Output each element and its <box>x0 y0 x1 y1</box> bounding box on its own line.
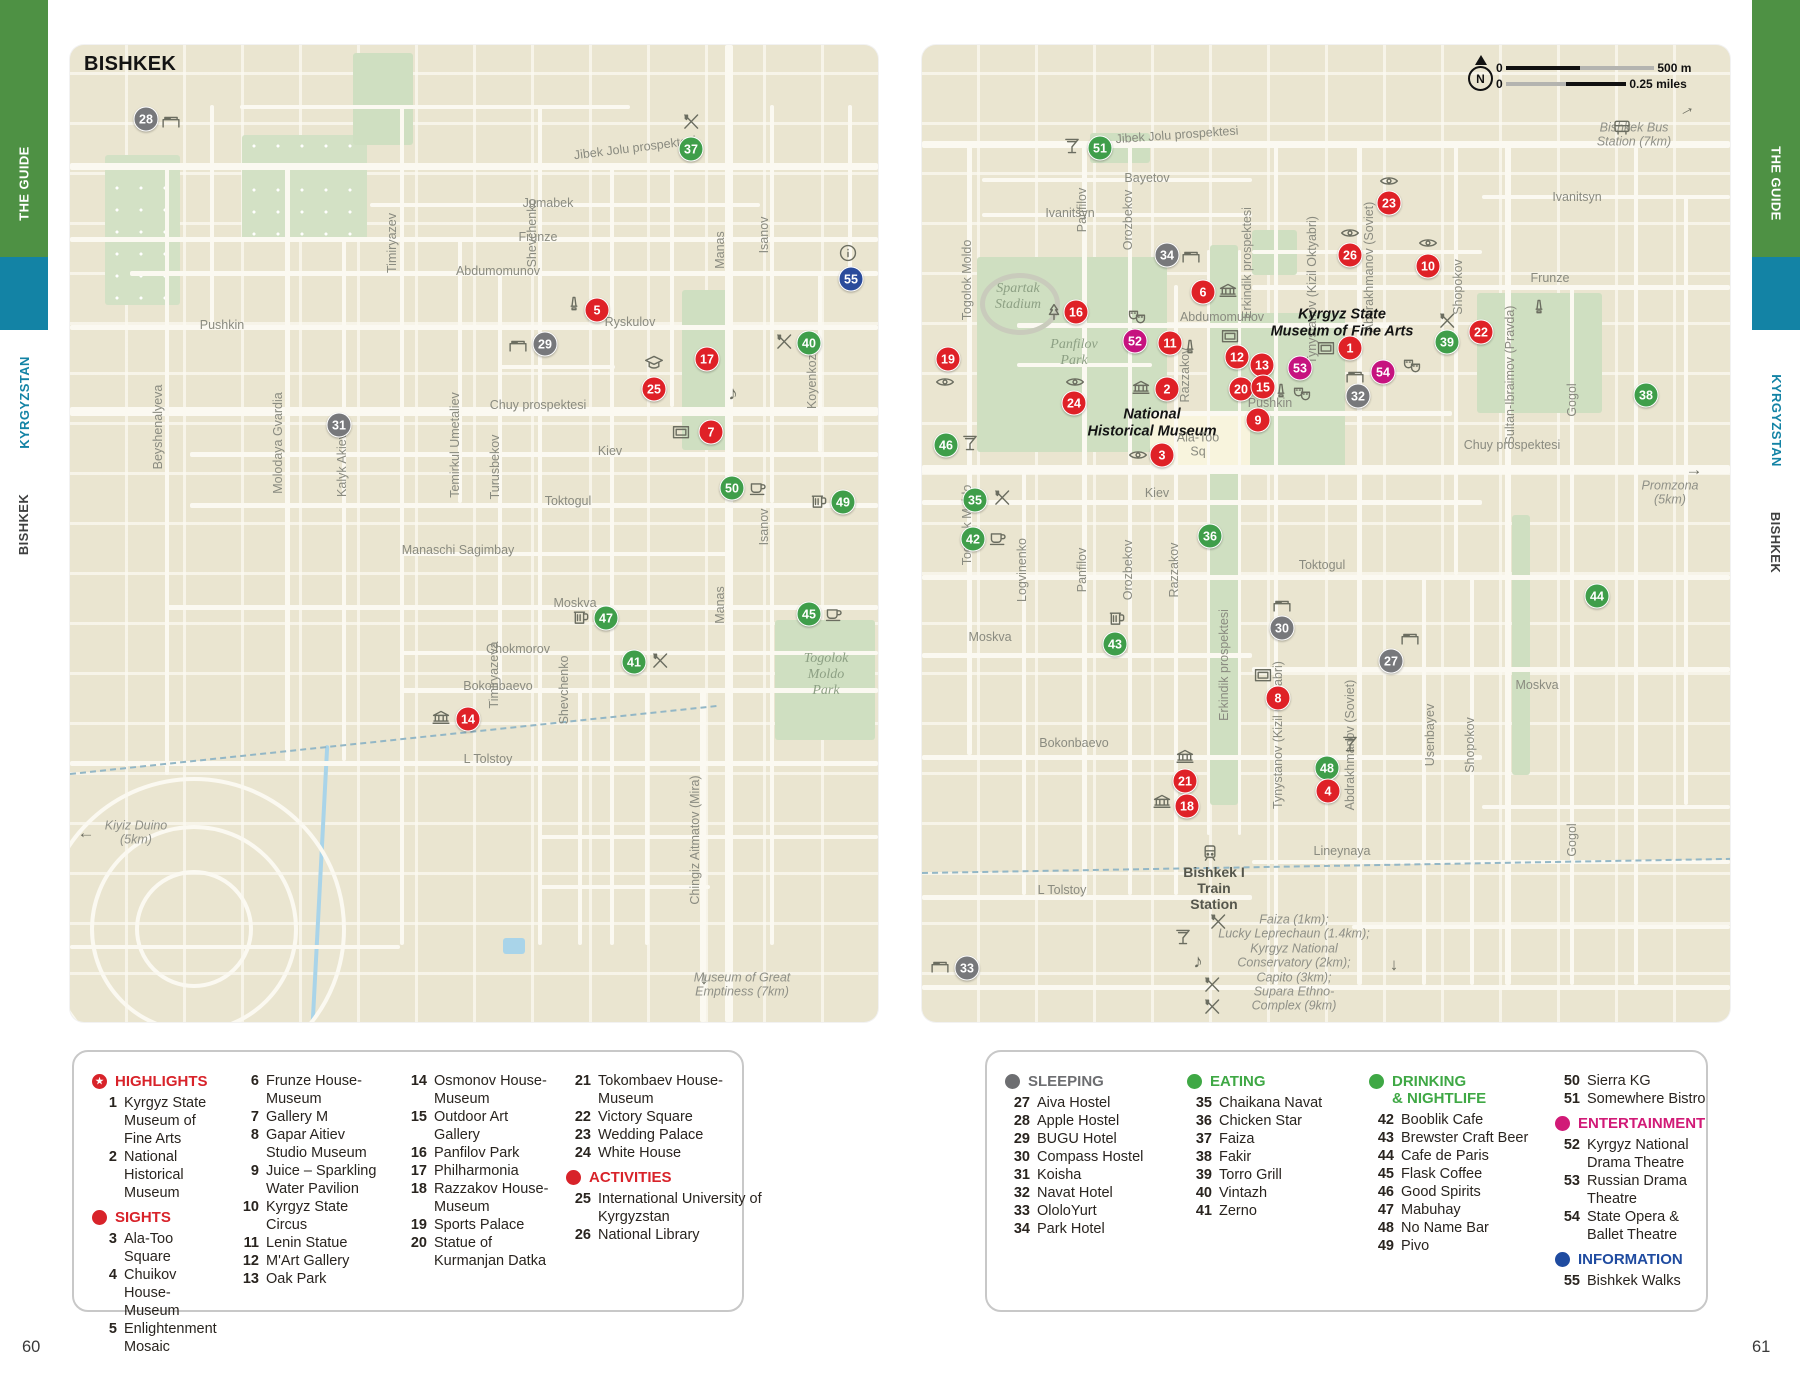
street <box>1352 925 1730 929</box>
map-label: Spartak Stadium <box>995 281 1041 313</box>
map-marker-35[interactable]: 35 <box>963 488 988 513</box>
legend-item: 38Fakir <box>1187 1148 1355 1166</box>
map-label: Bayetov <box>1124 171 1169 185</box>
legend-item-label: OloloYurt <box>1037 1202 1173 1220</box>
street <box>922 465 1730 474</box>
map-label: Shevchenko <box>557 656 571 725</box>
street <box>240 105 630 109</box>
street <box>922 575 1730 580</box>
legend-item: 21Tokombaev House-Museum <box>566 1072 762 1108</box>
map-label: Bishkek I Train Station <box>1183 864 1244 912</box>
legend-item-number: 47 <box>1369 1201 1401 1219</box>
legend-item: 35Chaikana Navat <box>1187 1094 1355 1112</box>
legend-item: 25International University of Kyrgyzstan <box>566 1190 762 1226</box>
map-marker-55[interactable]: 55 <box>839 267 864 292</box>
eye-icon <box>1065 372 1086 393</box>
legend-item: 9Juice – Sparkling Water Pavilion <box>234 1162 388 1198</box>
legend-item-label: Sierra KG <box>1587 1072 1715 1090</box>
scale-metric: 500 m <box>1657 61 1691 75</box>
street <box>610 163 614 945</box>
legend-item: 16Panfilov Park <box>402 1144 552 1162</box>
legend-item-label: Gapar Aitiev Studio Museum <box>266 1126 388 1162</box>
legend-section-header: EATING <box>1187 1073 1355 1090</box>
museum-icon <box>1131 378 1152 399</box>
street <box>1128 141 1132 895</box>
map-label: Ivanitsyn <box>1552 190 1601 204</box>
cocktail-icon <box>1340 734 1361 755</box>
map-marker-11[interactable]: 11 <box>1158 331 1183 356</box>
legend-column: EATING35Chaikana Navat36Chicken Star37Fa… <box>1187 1072 1355 1296</box>
map-label: Ryskulov <box>605 315 656 329</box>
map-label: Erkindik prospektesi <box>1240 207 1254 319</box>
legend-item-number: 21 <box>566 1072 598 1108</box>
map-marker-19[interactable]: 19 <box>936 347 961 372</box>
legend-column: 50Sierra KG51Somewhere BistroENTERTAINME… <box>1555 1072 1715 1296</box>
map-label: Togolok Moldo Park <box>804 651 849 699</box>
legend-item-number: 30 <box>1005 1148 1037 1166</box>
map-label: Lineynaya <box>1314 844 1371 858</box>
map-marker-27[interactable]: 27 <box>1379 649 1404 674</box>
map-label: Shopokov <box>1463 717 1477 773</box>
map-marker-21[interactable]: 21 <box>1173 769 1198 794</box>
park-area <box>1512 515 1530 775</box>
direction-arrow-icon: ↓ <box>700 969 709 989</box>
map-marker-31[interactable]: 31 <box>327 413 352 438</box>
legend-item-label: White House <box>598 1144 762 1162</box>
street <box>1022 465 1026 895</box>
obelisk-icon <box>564 294 585 315</box>
legend-item-number: 53 <box>1555 1172 1587 1208</box>
legend-item-label: Tokombaev House-Museum <box>598 1072 762 1108</box>
water-area <box>503 938 525 954</box>
legend-item: 18Razzakov House-Museum <box>402 1180 552 1216</box>
legend-column: 6Frunze House-Museum7Gallery M8Gapar Ait… <box>234 1072 388 1296</box>
street <box>578 688 582 945</box>
legend-item-number: 27 <box>1005 1094 1037 1112</box>
museum-icon <box>431 708 452 729</box>
legend-item-label: BUGU Hotel <box>1037 1130 1173 1148</box>
legend-item: 5Enlightenment Mosaic <box>92 1320 220 1356</box>
map-marker-53[interactable]: 53 <box>1288 356 1313 381</box>
legend-item: 37Faiza <box>1187 1130 1355 1148</box>
map-label: Logvinenko <box>1015 538 1029 602</box>
map-marker-43[interactable]: 43 <box>1103 632 1128 657</box>
map-label: Shevchenko <box>525 199 539 268</box>
tree-icon <box>1044 302 1065 323</box>
legend-item-number: 38 <box>1187 1148 1219 1166</box>
legend-item: 7Gallery M <box>234 1108 388 1126</box>
bed-icon <box>1400 628 1421 649</box>
map-marker-3[interactable]: 3 <box>1150 443 1175 468</box>
legend-item: 1Kyrgyz State Museum of Fine Arts <box>92 1094 220 1148</box>
frame-icon <box>671 422 692 443</box>
direction-arrow-icon: ← <box>78 823 95 843</box>
map-marker-4[interactable]: 4 <box>1316 779 1341 804</box>
category-bullet-icon <box>1369 1074 1384 1089</box>
map-bishkek-west: Jibek Jolu prospektesiJumabekFrunzeAbdum… <box>70 45 878 1022</box>
legend-item-label: Apple Hostel <box>1037 1112 1173 1130</box>
map-marker-32[interactable]: 32 <box>1346 384 1371 409</box>
map-label: Chuy prospektesi <box>490 398 587 412</box>
music-icon: ♪ <box>1193 953 1203 972</box>
street <box>982 213 1252 217</box>
street <box>645 688 649 945</box>
map-marker-41[interactable]: 41 <box>622 650 647 675</box>
eye-icon <box>1340 223 1361 244</box>
legend-section-title: INFORMATION <box>1578 1251 1683 1268</box>
legend-item-number: 35 <box>1187 1094 1219 1112</box>
legend-item-label: Razzakov House-Museum <box>434 1180 552 1216</box>
legend-item-label: Outdoor Art Gallery <box>434 1108 552 1144</box>
legend-item-number: 52 <box>1555 1136 1587 1172</box>
legend-section-header: SLEEPING <box>1005 1073 1173 1090</box>
gradcap-icon <box>644 353 665 374</box>
legend-item-label: Cafe de Paris <box>1401 1147 1541 1165</box>
legend-item: 6Frunze House-Museum <box>234 1072 388 1108</box>
legend-item: 47Mabuhay <box>1369 1201 1541 1219</box>
street <box>1634 141 1638 985</box>
street <box>922 755 1482 760</box>
legend-item: 19Sports Palace <box>402 1216 552 1234</box>
map-marker-29[interactable]: 29 <box>533 332 558 357</box>
legend-item-label: Booblik Cafe <box>1401 1111 1541 1129</box>
legend-item-number: 45 <box>1369 1165 1401 1183</box>
scale-imperial: 0.25 miles <box>1629 77 1686 91</box>
map-label: L Tolstoy <box>464 752 513 766</box>
map-marker-2[interactable]: 2 <box>1155 377 1180 402</box>
legend-item-label: No Name Bar <box>1401 1219 1541 1237</box>
legend-item: 17Philharmonia <box>402 1162 552 1180</box>
map-marker-18[interactable]: 18 <box>1175 794 1200 819</box>
map-marker-42[interactable]: 42 <box>961 527 986 552</box>
category-bullet-icon <box>1555 1252 1570 1267</box>
map-label: Bokonbaevo <box>1039 736 1109 750</box>
legend-item-number: 44 <box>1369 1147 1401 1165</box>
legend-section-header: ★HIGHLIGHTS <box>92 1073 220 1090</box>
bed-icon <box>161 111 182 132</box>
legend-item-label: Ala-Too Square <box>124 1230 220 1266</box>
map-marker-9[interactable]: 9 <box>1246 408 1271 433</box>
legend-item-label: Somewhere Bistro <box>1587 1090 1715 1108</box>
chapter-tab <box>1752 257 1800 330</box>
cup-icon <box>824 603 845 624</box>
legend-item-number: 3 <box>92 1230 124 1266</box>
map-label: Panfilov <box>1075 548 1089 592</box>
legend-item-label: Frunze House-Museum <box>266 1072 388 1108</box>
map-label: Shopokov <box>1451 259 1465 315</box>
map-marker-54[interactable]: 54 <box>1371 360 1396 385</box>
beer-icon <box>571 607 592 628</box>
map-marker-5[interactable]: 5 <box>585 298 610 323</box>
north-arrow-icon <box>1475 55 1487 65</box>
map-marker-47[interactable]: 47 <box>594 606 619 631</box>
legend-item-number: 54 <box>1555 1208 1587 1244</box>
legend-item: 11Lenin Statue <box>234 1234 388 1252</box>
legend-item-label: Mabuhay <box>1401 1201 1541 1219</box>
legend-item-label: Fakir <box>1219 1148 1355 1166</box>
map-marker-14[interactable]: 14 <box>456 707 481 732</box>
legend-item-number: 26 <box>566 1226 598 1244</box>
map-label: Manaschi Sagimbay <box>402 543 515 557</box>
map-label: Sultan-Ibraimov (Pravda) <box>1503 306 1517 445</box>
map-marker-50[interactable]: 50 <box>720 476 745 501</box>
map-marker-10[interactable]: 10 <box>1416 254 1441 279</box>
street <box>1252 285 1730 290</box>
street <box>540 885 710 889</box>
spine-guide-label: THE GUIDE <box>0 110 48 257</box>
legend-item: 34Park Hotel <box>1005 1220 1173 1238</box>
legend-item-label: Lenin Statue <box>266 1234 388 1252</box>
map-marker-24[interactable]: 24 <box>1062 391 1087 416</box>
legend-item-label: Oak Park <box>266 1270 388 1288</box>
category-bullet-icon <box>1005 1074 1020 1089</box>
legend-item-label: Torro Grill <box>1219 1166 1355 1184</box>
dining-icon <box>1437 311 1458 332</box>
legend-section-header: DRINKING & NIGHTLIFE <box>1369 1073 1541 1107</box>
street <box>1274 141 1278 985</box>
map-label: Isanov <box>757 217 771 254</box>
legend-item-number: 37 <box>1187 1130 1219 1148</box>
bed-icon <box>508 335 529 356</box>
legend-item: 14Osmonov House-Museum <box>402 1072 552 1108</box>
eye-icon <box>935 372 956 393</box>
legend-item-number: 8 <box>234 1126 266 1162</box>
map-marker-22[interactable]: 22 <box>1469 320 1494 345</box>
scale-seg <box>1506 66 1580 70</box>
dining-icon <box>650 651 671 672</box>
cup-icon <box>988 527 1009 548</box>
dining-icon <box>1202 997 1223 1018</box>
map-label: Temirkul Umetaliev <box>448 392 462 498</box>
legend-item: 12M'Art Gallery <box>234 1252 388 1270</box>
map-marker-49[interactable]: 49 <box>831 490 856 515</box>
compass-n: N <box>1468 66 1493 91</box>
frame-icon <box>1316 338 1337 359</box>
legend-item: 54State Opera & Ballet Theatre <box>1555 1208 1715 1244</box>
legend-item-number: 42 <box>1369 1111 1401 1129</box>
spine-region-label: KYRGYZSTAN <box>0 332 48 472</box>
legend-section-title: SIGHTS <box>115 1209 171 1226</box>
legend-item-number: 43 <box>1369 1129 1401 1147</box>
legend-item-label: Chicken Star <box>1219 1112 1355 1130</box>
street <box>770 105 774 503</box>
scale-bar: 0 500 m 0 0.25 miles <box>1496 60 1691 92</box>
map-label: Kiev <box>598 444 622 458</box>
street <box>670 163 674 407</box>
right-spine: THE GUIDE KYRGYZSTAN BISHKEK <box>1752 0 1800 1385</box>
map-marker-28[interactable]: 28 <box>134 107 159 132</box>
legend-item-label: Kyrgyz State Museum of Fine Arts <box>124 1094 220 1148</box>
map-marker-15[interactable]: 15 <box>1251 375 1276 400</box>
street <box>770 503 774 945</box>
direction-arrow-icon: → <box>1686 460 1703 480</box>
music-icon: ♪ <box>728 385 738 404</box>
map-marker-17[interactable]: 17 <box>695 347 720 372</box>
map-marker-25[interactable]: 25 <box>642 377 667 402</box>
legend-item: 23Wedding Palace <box>566 1126 762 1144</box>
map-label: Kyrgyz State Museum of Fine Arts <box>1271 306 1414 339</box>
map-marker-1[interactable]: 1 <box>1338 336 1363 361</box>
category-bullet-icon <box>1187 1074 1202 1089</box>
legend-item: 40Vintazh <box>1187 1184 1355 1202</box>
obelisk-icon <box>1180 337 1201 358</box>
map-marker-45[interactable]: 45 <box>797 602 822 627</box>
map-marker-23[interactable]: 23 <box>1377 191 1402 216</box>
map-marker-51[interactable]: 51 <box>1088 136 1113 161</box>
legend-item-label: Navat Hotel <box>1037 1184 1173 1202</box>
scale-seg <box>1566 82 1626 86</box>
legend-item: 53Russian Drama Theatre <box>1555 1172 1715 1208</box>
map-label: Frunze <box>1531 271 1570 285</box>
map-label: Manas <box>713 586 727 624</box>
map-marker-34[interactable]: 34 <box>1155 243 1180 268</box>
legend-column: DRINKING & NIGHTLIFE42Booblik Cafe43Brew… <box>1369 1072 1541 1296</box>
legend-item-number: 7 <box>234 1108 266 1126</box>
legend-item: 46Good Spirits <box>1369 1183 1541 1201</box>
legend-item-number: 51 <box>1555 1090 1587 1108</box>
dining-icon <box>992 488 1013 509</box>
legend-item-label: M'Art Gallery <box>266 1252 388 1270</box>
map-label: Panfilov <box>1075 188 1089 232</box>
legend-item-label: Flask Coffee <box>1401 1165 1541 1183</box>
spine-region-label: KYRGYZSTAN <box>1752 350 1800 490</box>
map-label: Chingiz Aitmatov (Mira) <box>688 775 702 904</box>
map-marker-33[interactable]: 33 <box>955 956 980 981</box>
legend-item: 29BUGU Hotel <box>1005 1130 1173 1148</box>
street <box>400 105 404 945</box>
legend-item-label: Enlightenment Mosaic <box>124 1320 220 1356</box>
legend-item-number: 25 <box>566 1190 598 1226</box>
street <box>1470 575 1474 985</box>
legend-item: 44Cafe de Paris <box>1369 1147 1541 1165</box>
dining-icon <box>681 112 702 133</box>
map-label: Pushkin <box>200 318 244 332</box>
legend-item-label: Faiza <box>1219 1130 1355 1148</box>
street <box>70 325 878 330</box>
scale-zero: 0 <box>1496 61 1503 75</box>
map-label: Molodaya Gvardia <box>271 392 285 493</box>
map-label: Manas <box>713 231 727 269</box>
street <box>1422 575 1426 985</box>
legend-item-number: 4 <box>92 1266 124 1320</box>
legend-item-number: 39 <box>1187 1166 1219 1184</box>
map-marker-48[interactable]: 48 <box>1315 756 1340 781</box>
map-label: Promzona (5km) <box>1642 479 1699 508</box>
legend-item-label: Koisha <box>1037 1166 1173 1184</box>
map-label: Orozbekov <box>1121 190 1135 250</box>
legend-item-number: 40 <box>1187 1184 1219 1202</box>
legend-column: ★HIGHLIGHTS1Kyrgyz State Museum of Fine … <box>92 1072 220 1296</box>
star-bullet-icon: ★ <box>92 1074 107 1089</box>
legend-item: 36Chicken Star <box>1187 1112 1355 1130</box>
legend-item-number: 48 <box>1369 1219 1401 1237</box>
map-marker-38[interactable]: 38 <box>1634 383 1659 408</box>
map-marker-52[interactable]: 52 <box>1123 329 1148 354</box>
map-label: Razzakov <box>1167 543 1181 598</box>
cocktail-icon <box>1062 136 1083 157</box>
map-marker-46[interactable]: 46 <box>934 433 959 458</box>
scale-seg <box>1506 82 1566 86</box>
map-marker-36[interactable]: 36 <box>1198 524 1223 549</box>
legend-item: 22Victory Square <box>566 1108 762 1126</box>
category-bullet-icon <box>1555 1116 1570 1131</box>
street <box>1454 141 1458 575</box>
direction-arrow-icon: → <box>1674 96 1698 121</box>
legend-item: 13Oak Park <box>234 1270 388 1288</box>
map-marker-37[interactable]: 37 <box>679 137 704 162</box>
park-area <box>353 53 413 145</box>
dining-icon <box>1202 975 1223 996</box>
chapter-tab <box>0 257 48 330</box>
street <box>210 105 214 325</box>
map-label: Turusbekov <box>488 435 502 500</box>
map-label: Timiryazev <box>385 213 399 273</box>
cup-icon <box>748 477 769 498</box>
legend-item: 39Torro Grill <box>1187 1166 1355 1184</box>
street <box>1482 805 1730 809</box>
map-marker-39[interactable]: 39 <box>1435 330 1460 355</box>
eye-icon <box>1128 445 1149 466</box>
eye-icon <box>1418 233 1439 254</box>
legend-item-label: Good Spirits <box>1401 1183 1541 1201</box>
map-marker-6[interactable]: 6 <box>1191 280 1216 305</box>
legend-section-title: EATING <box>1210 1073 1266 1090</box>
map-marker-7[interactable]: 7 <box>699 420 724 445</box>
legend-item: 32Navat Hotel <box>1005 1184 1173 1202</box>
legend-item-label: Philharmonia <box>434 1162 552 1180</box>
legend-item-number: 19 <box>402 1216 434 1234</box>
map-marker-16[interactable]: 16 <box>1064 300 1089 325</box>
map-label: L Tolstoy <box>1038 883 1087 897</box>
legend-item-label: Chaikana Navat <box>1219 1094 1355 1112</box>
map-bishkek-east: Jibek Jolu prospektesiBayetovIvanitsynIv… <box>922 45 1730 1022</box>
legend-section-title: ENTERTAINMENT <box>1578 1115 1705 1132</box>
legend-item: 49Pivo <box>1369 1237 1541 1255</box>
map-marker-12[interactable]: 12 <box>1225 345 1250 370</box>
legend-item-label: Panfilov Park <box>434 1144 552 1162</box>
legend-item-label: Juice – Sparkling Water Pavilion <box>266 1162 388 1198</box>
train-icon <box>1200 843 1221 864</box>
legend-item-label: Russian Drama Theatre <box>1587 1172 1715 1208</box>
legend-item-number: 16 <box>402 1144 434 1162</box>
map-marker-30[interactable]: 30 <box>1270 616 1295 641</box>
legend-item: 24White House <box>566 1144 762 1162</box>
legend-item-number: 50 <box>1555 1072 1587 1090</box>
map-label: Usenbayev <box>1423 704 1437 767</box>
dining-icon <box>774 332 795 353</box>
map-marker-40[interactable]: 40 <box>797 331 822 356</box>
map-label: Gogol <box>1565 823 1579 856</box>
map-marker-8[interactable]: 8 <box>1266 686 1291 711</box>
legend-item-number: 14 <box>402 1072 434 1108</box>
legend-item-number: 18 <box>402 1180 434 1216</box>
legend-item-number: 34 <box>1005 1220 1037 1238</box>
masks-icon <box>1127 307 1148 328</box>
museum-icon <box>1152 792 1173 813</box>
map-marker-26[interactable]: 26 <box>1338 243 1363 268</box>
legend-item: 55Bishkek Walks <box>1555 1272 1715 1290</box>
legend-item-label: Bishkek Walks <box>1587 1272 1715 1290</box>
page-number-right: 61 <box>1752 1338 1770 1357</box>
street <box>1082 141 1087 895</box>
map-marker-44[interactable]: 44 <box>1585 584 1610 609</box>
masks-icon <box>1402 356 1423 377</box>
frame-icon <box>1253 665 1274 686</box>
legend-item-number: 32 <box>1005 1184 1037 1202</box>
legend-section-header: ENTERTAINMENT <box>1555 1115 1715 1132</box>
legend-item: 50Sierra KG <box>1555 1072 1715 1090</box>
legend-item: 2National Historical Museum <box>92 1148 220 1202</box>
